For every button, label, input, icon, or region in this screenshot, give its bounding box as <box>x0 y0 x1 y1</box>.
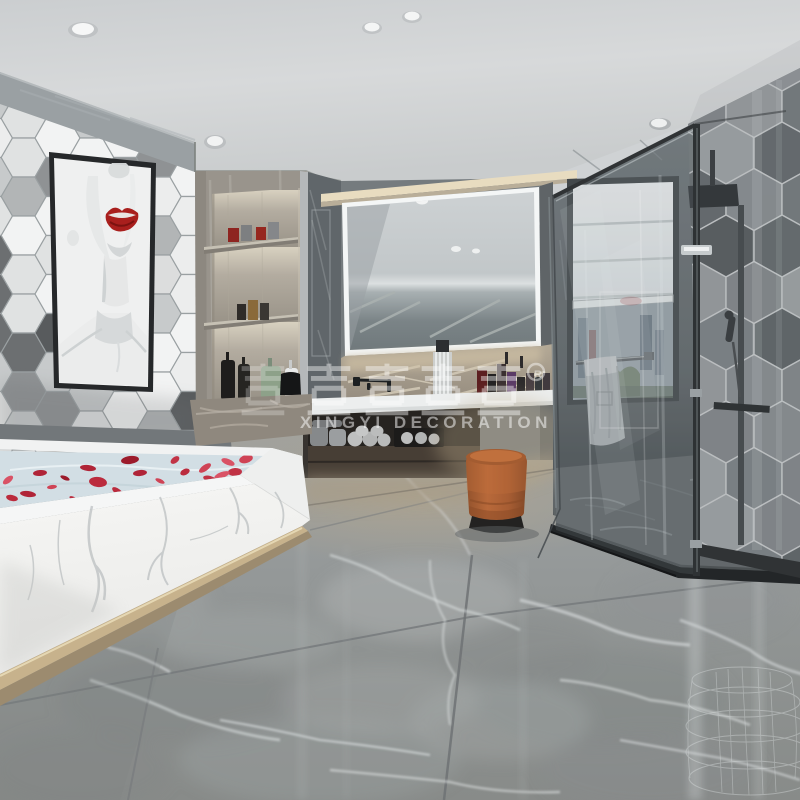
svg-text:R: R <box>534 369 542 381</box>
svg-text:XINGYI DECORATION: XINGYI DECORATION <box>300 413 552 432</box>
